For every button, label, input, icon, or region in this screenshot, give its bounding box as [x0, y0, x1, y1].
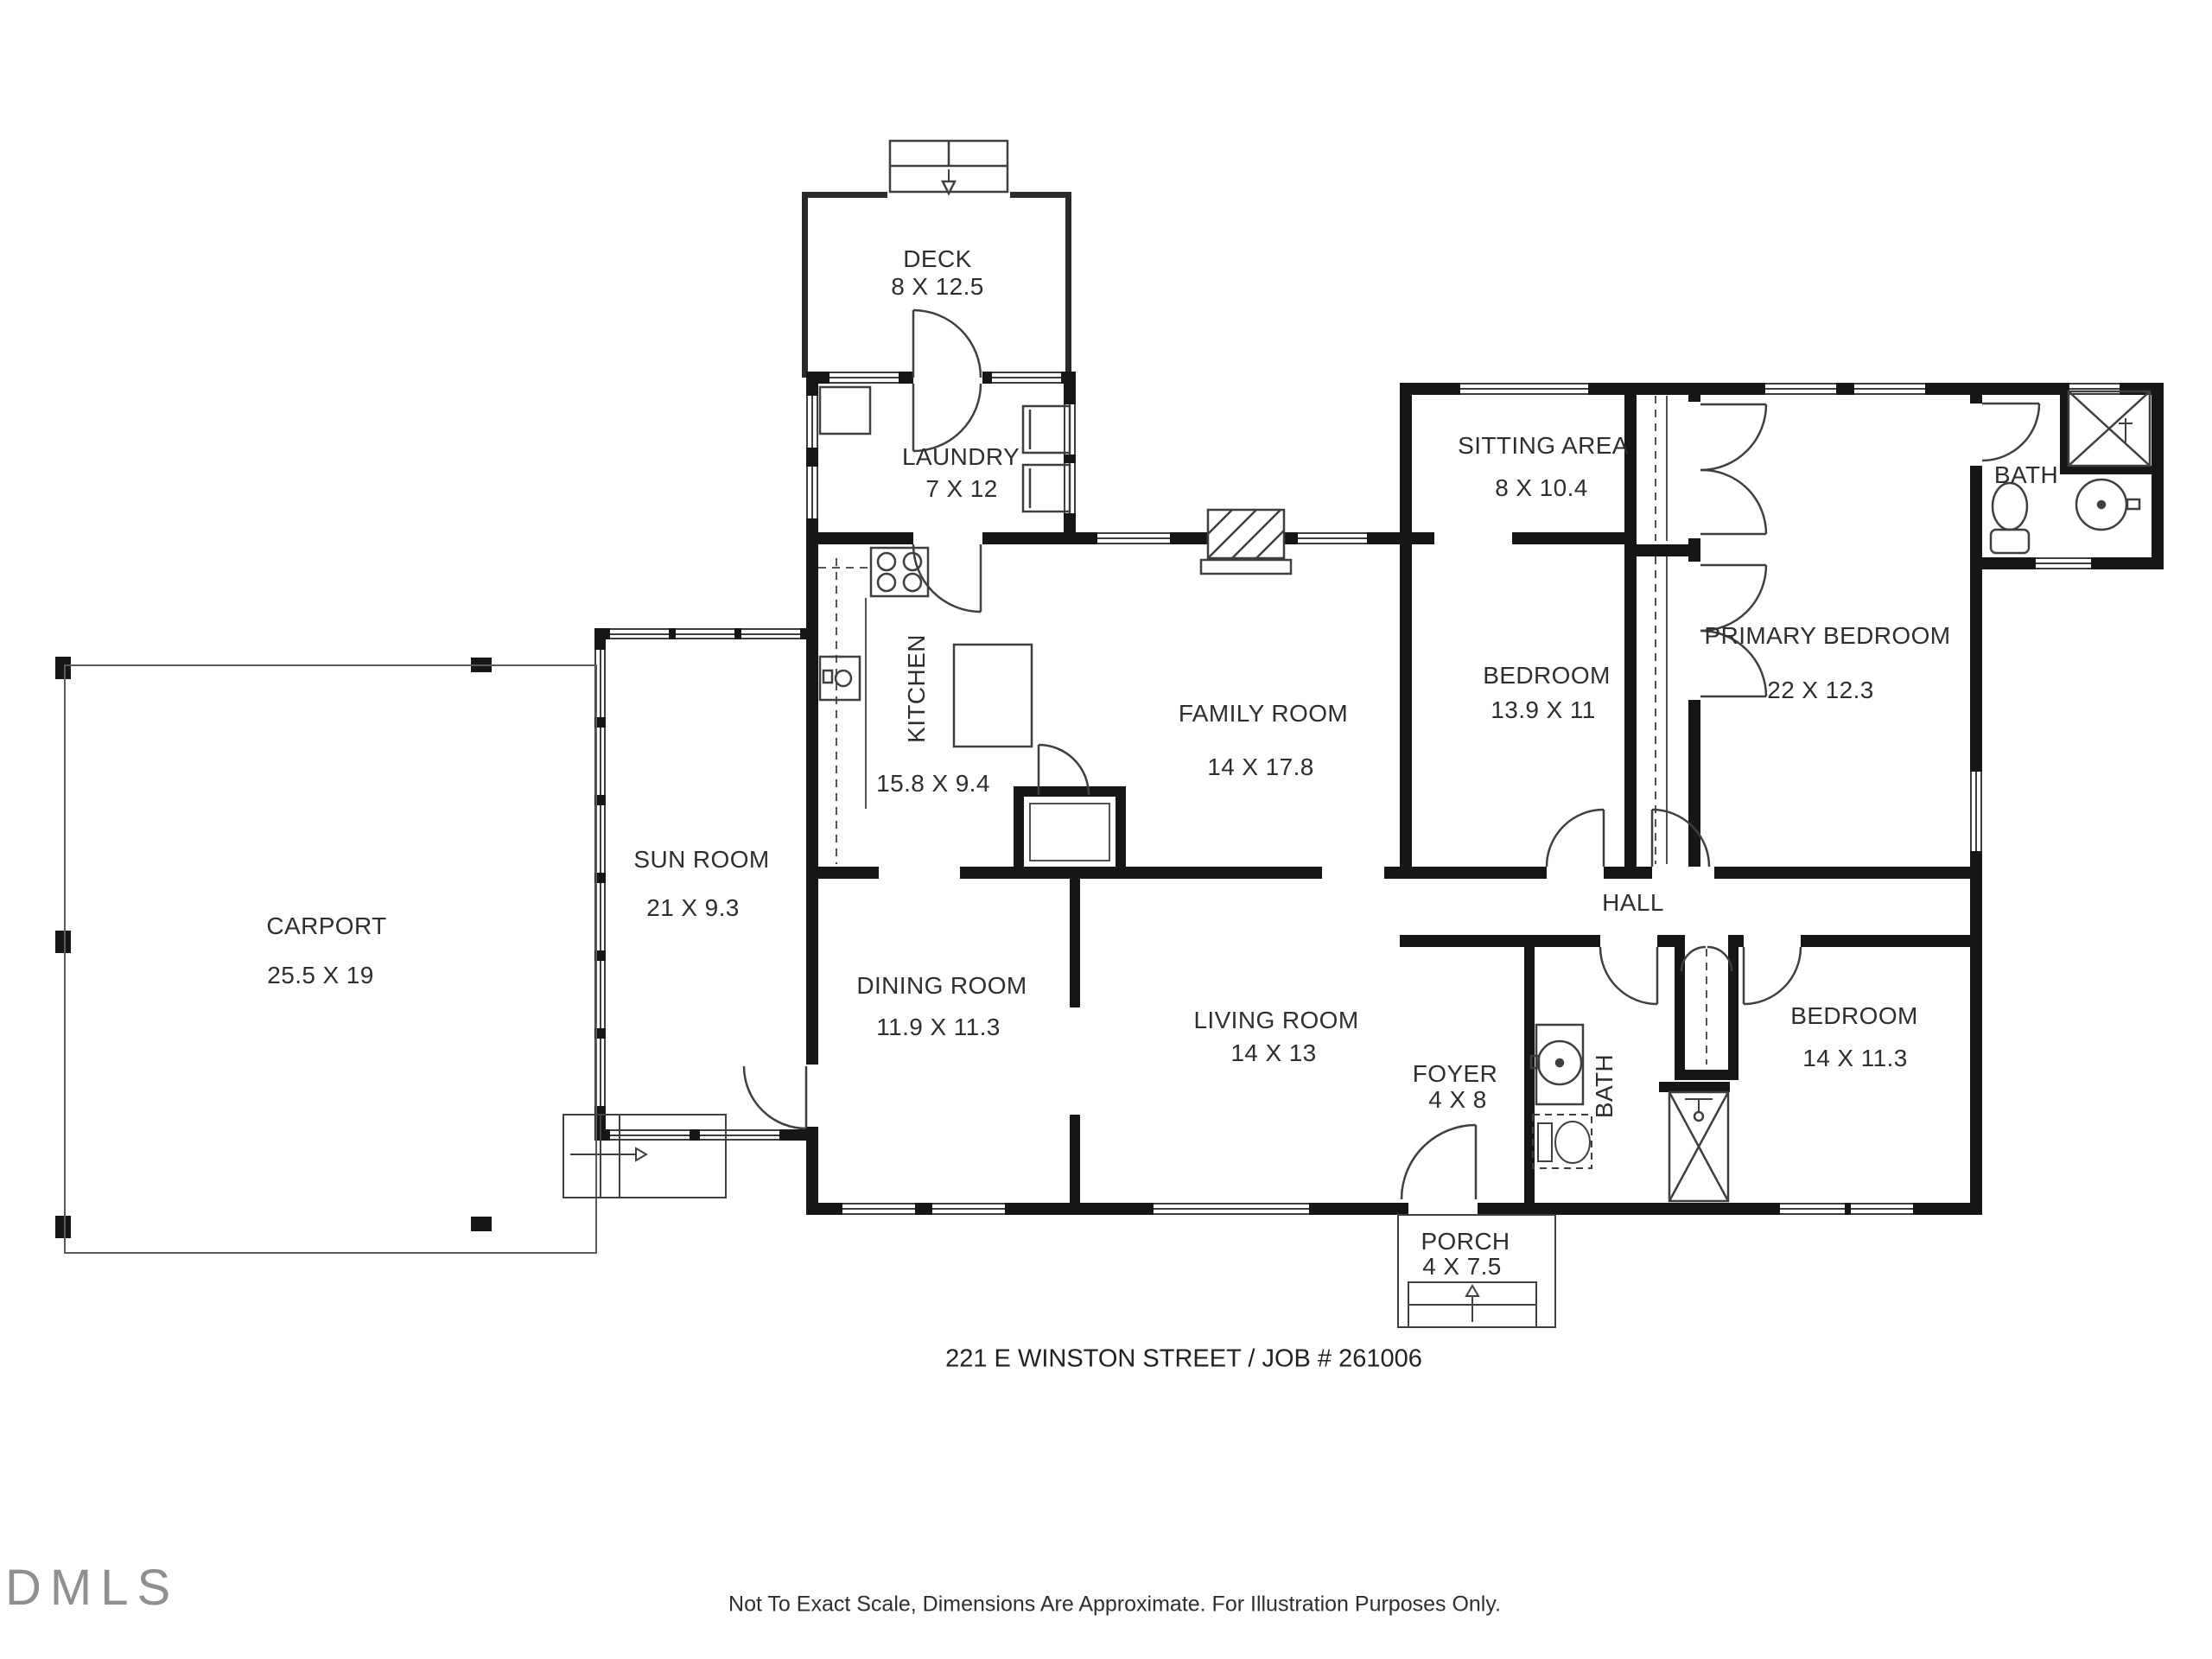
room-label-hall: HALL — [1602, 889, 1664, 917]
room-dims-porch: 4 X 7.5 — [1422, 1253, 1502, 1281]
window — [1765, 383, 1836, 395]
room-dims-sun-room: 21 X 9.3 — [646, 894, 740, 922]
island — [954, 645, 1032, 747]
window — [932, 1203, 1005, 1215]
room-label-foyer: FOYER — [1413, 1060, 1497, 1088]
room-dims-sitting-area: 8 X 10.4 — [1495, 474, 1588, 502]
window — [1970, 772, 1982, 851]
room-dims-carport: 25.5 X 19 — [267, 962, 373, 989]
window — [594, 883, 606, 950]
room-dims-primary-bedroom: 22 X 12.3 — [1767, 677, 1873, 704]
room-dims-dining-room: 11.9 X 11.3 — [876, 1014, 1000, 1041]
kitchen-sink-icon — [820, 657, 860, 700]
disclaimer: Not To Exact Scale, Dimensions Are Appro… — [728, 1592, 1501, 1618]
window — [610, 628, 669, 639]
window — [1851, 1203, 1913, 1215]
room-label-carport: CARPORT — [266, 912, 386, 940]
carport-post — [55, 657, 71, 679]
window — [741, 628, 800, 639]
window — [992, 372, 1061, 384]
window — [806, 396, 818, 448]
room-dims-bedroom-mid: 13.9 X 11 — [1491, 696, 1595, 724]
room-label-primary-bedroom: PRIMARY BEDROOM — [1704, 622, 1950, 650]
carport-post — [471, 658, 492, 672]
window — [1460, 383, 1588, 395]
room-label-bath-top: BATH — [1994, 461, 2058, 489]
room-label-living-room: LIVING ROOM — [1193, 1007, 1358, 1034]
room-label-sun-room: SUN ROOM — [633, 846, 769, 874]
window — [676, 628, 734, 639]
cabinet-icon — [820, 387, 870, 434]
pantry-shelf — [1030, 804, 1109, 861]
window — [829, 372, 899, 384]
room-label-laundry: LAUNDRY — [902, 443, 1020, 471]
window — [700, 1129, 779, 1141]
window — [594, 650, 606, 717]
room-dims-family-room: 14 X 17.8 — [1207, 753, 1313, 781]
room-label-bath-mid: BATH — [1591, 1054, 1618, 1118]
window — [842, 1203, 915, 1215]
window — [594, 1039, 606, 1106]
window — [1854, 383, 1925, 395]
carport-post — [55, 1216, 71, 1238]
toilet-icon — [1533, 1115, 1592, 1168]
room-dims-deck: 8 X 12.5 — [891, 273, 984, 301]
shower-icon — [1669, 1092, 1728, 1201]
room-dims-laundry: 7 X 12 — [925, 475, 997, 503]
toilet-icon — [1991, 483, 2029, 553]
window — [594, 961, 606, 1028]
window — [1064, 463, 1076, 513]
window — [806, 467, 818, 518]
window — [1154, 1203, 1309, 1215]
room-label-deck: DECK — [903, 245, 971, 273]
room-label-kitchen: KITCHEN — [903, 634, 931, 743]
window — [1298, 532, 1367, 544]
dryer-icon — [1023, 465, 1070, 512]
carport-post — [471, 1217, 492, 1231]
room-label-dining-room: DINING ROOM — [856, 972, 1027, 1000]
room-dims-kitchen: 15.8 X 9.4 — [876, 770, 990, 798]
window — [1064, 404, 1076, 454]
window — [2069, 383, 2120, 395]
stove-icon — [871, 548, 928, 596]
window — [2036, 557, 2091, 569]
window — [610, 1129, 690, 1141]
carport-post — [55, 931, 71, 953]
carport-outline — [65, 665, 596, 1253]
sunroom-steps-icon — [563, 1115, 726, 1198]
room-dims-foyer: 4 X 8 — [1428, 1086, 1486, 1114]
washer-icon — [1023, 406, 1070, 453]
counter-lines — [818, 558, 871, 864]
vanity-sink-icon — [1531, 1025, 1583, 1104]
room-label-bedroom-mid: BEDROOM — [1483, 662, 1610, 690]
room-label-bedroom-right: BEDROOM — [1790, 1002, 1917, 1030]
room-dims-bedroom-right: 14 X 11.3 — [1802, 1045, 1907, 1072]
window — [594, 728, 606, 795]
window — [1780, 1203, 1845, 1215]
symbols-layer — [0, 0, 2212, 1659]
room-label-sitting-area: SITTING AREA — [1458, 432, 1629, 460]
address-line: 221 E WINSTON STREET / JOB # 261006 — [945, 1345, 1422, 1374]
floor-plan: DECK 8 X 12.5 LAUNDRY 7 X 12 KITCHEN 15.… — [0, 0, 2212, 1659]
bath-sink-icon — [2076, 480, 2139, 530]
deck-steps-icon — [890, 141, 1007, 194]
room-label-family-room: FAMILY ROOM — [1179, 700, 1348, 728]
room-dims-living-room: 14 X 13 — [1230, 1039, 1316, 1067]
room-label-porch: PORCH — [1421, 1228, 1510, 1255]
window — [594, 805, 606, 873]
window — [1097, 532, 1170, 544]
shower-icon — [2069, 391, 2150, 466]
dmls-logo: DMLS — [5, 1559, 179, 1617]
